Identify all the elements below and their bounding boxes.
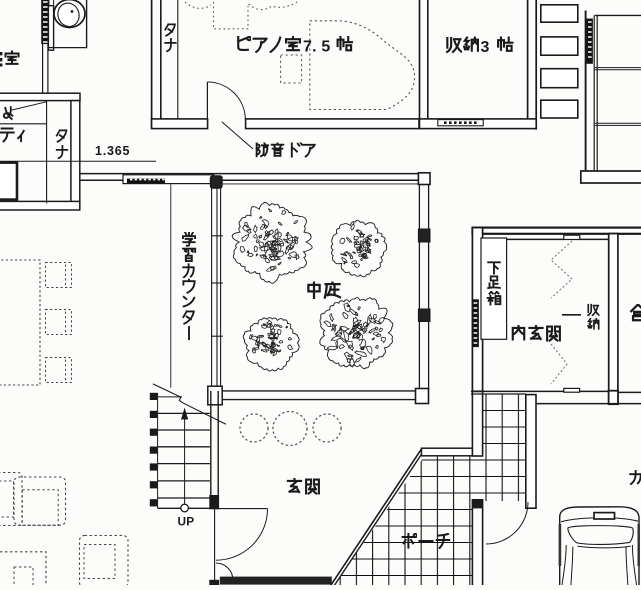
svg-text:1.365: 1.365 bbox=[95, 144, 130, 158]
svg-text:3: 3 bbox=[481, 39, 490, 56]
svg-text:7. 5: 7. 5 bbox=[303, 39, 331, 56]
svg-text:UP: UP bbox=[178, 514, 195, 528]
